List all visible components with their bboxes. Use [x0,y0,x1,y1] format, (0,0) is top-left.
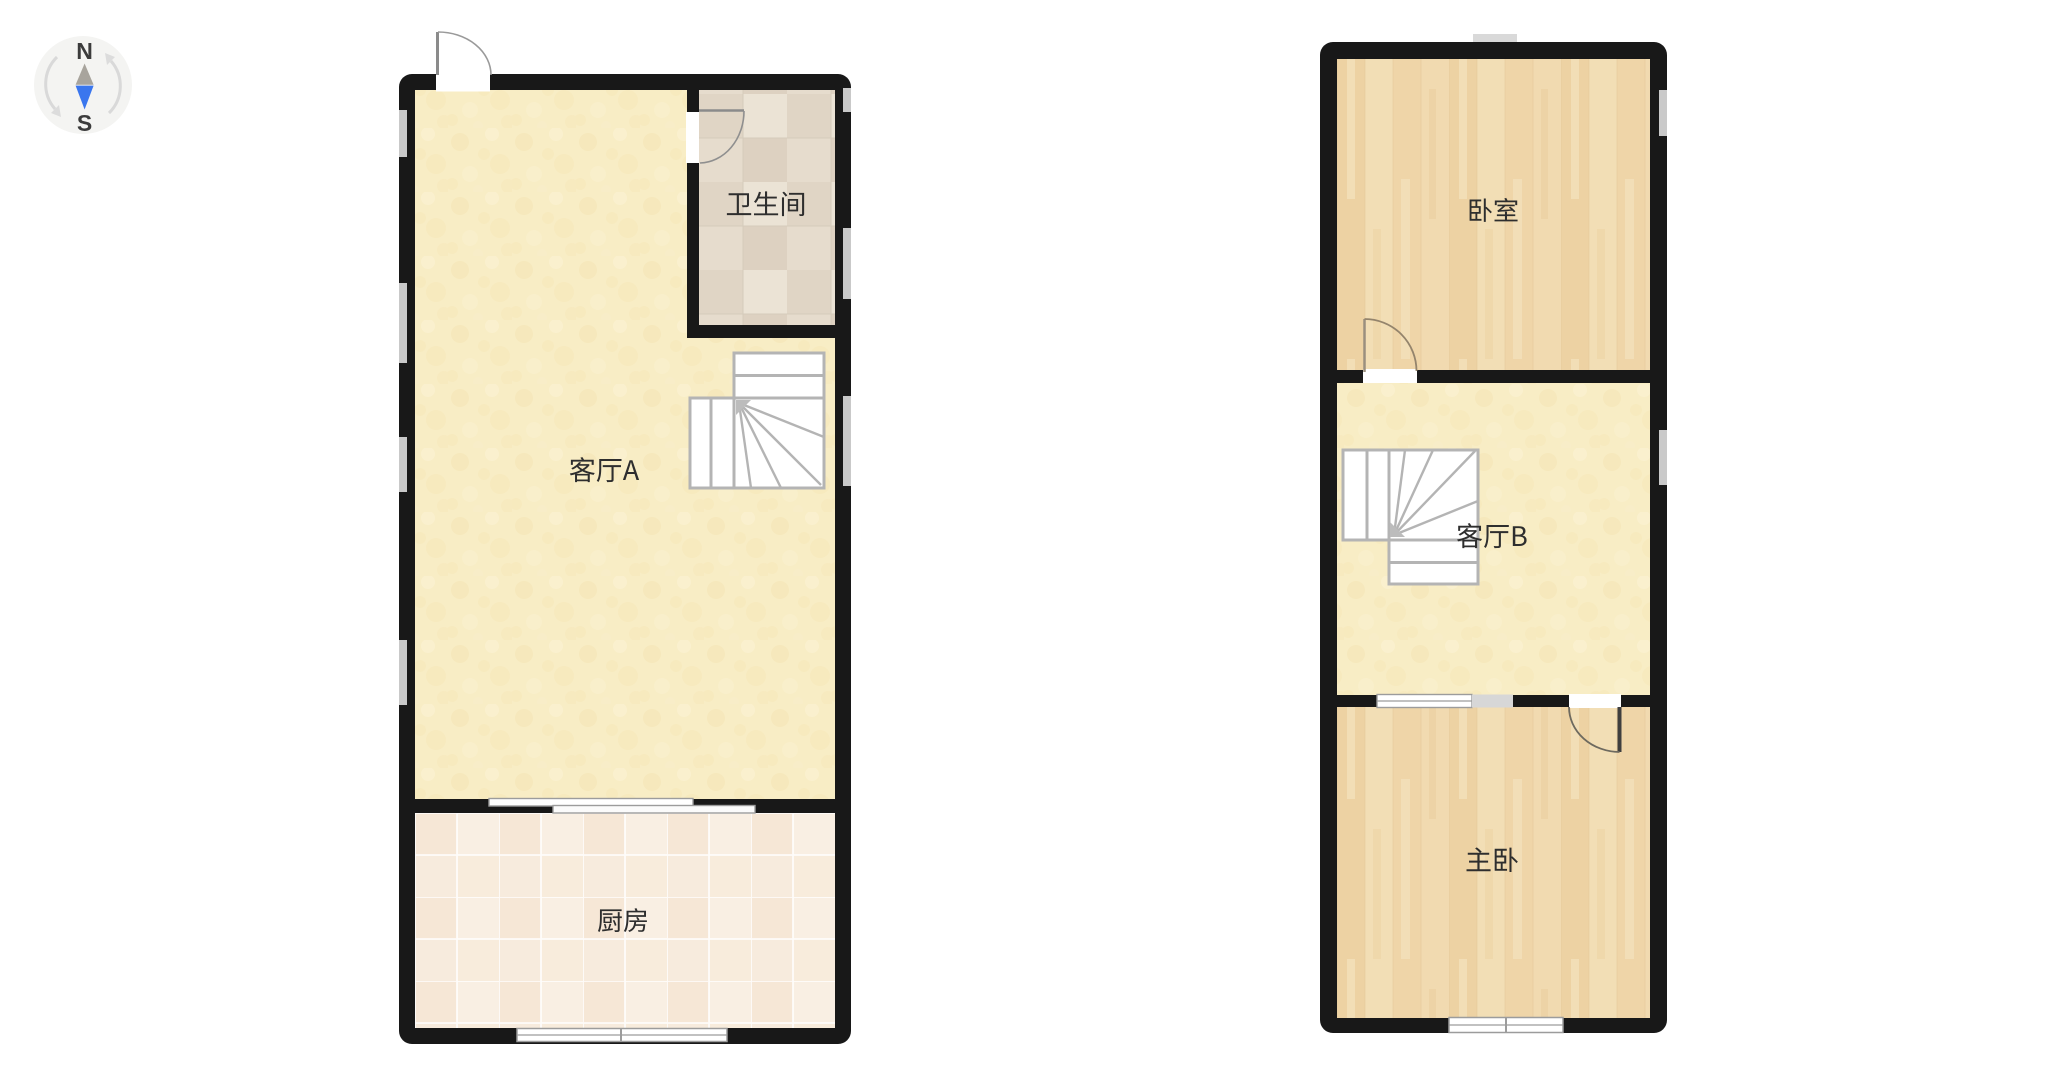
svg-text:N: N [76,38,93,64]
svg-text:S: S [77,110,92,136]
